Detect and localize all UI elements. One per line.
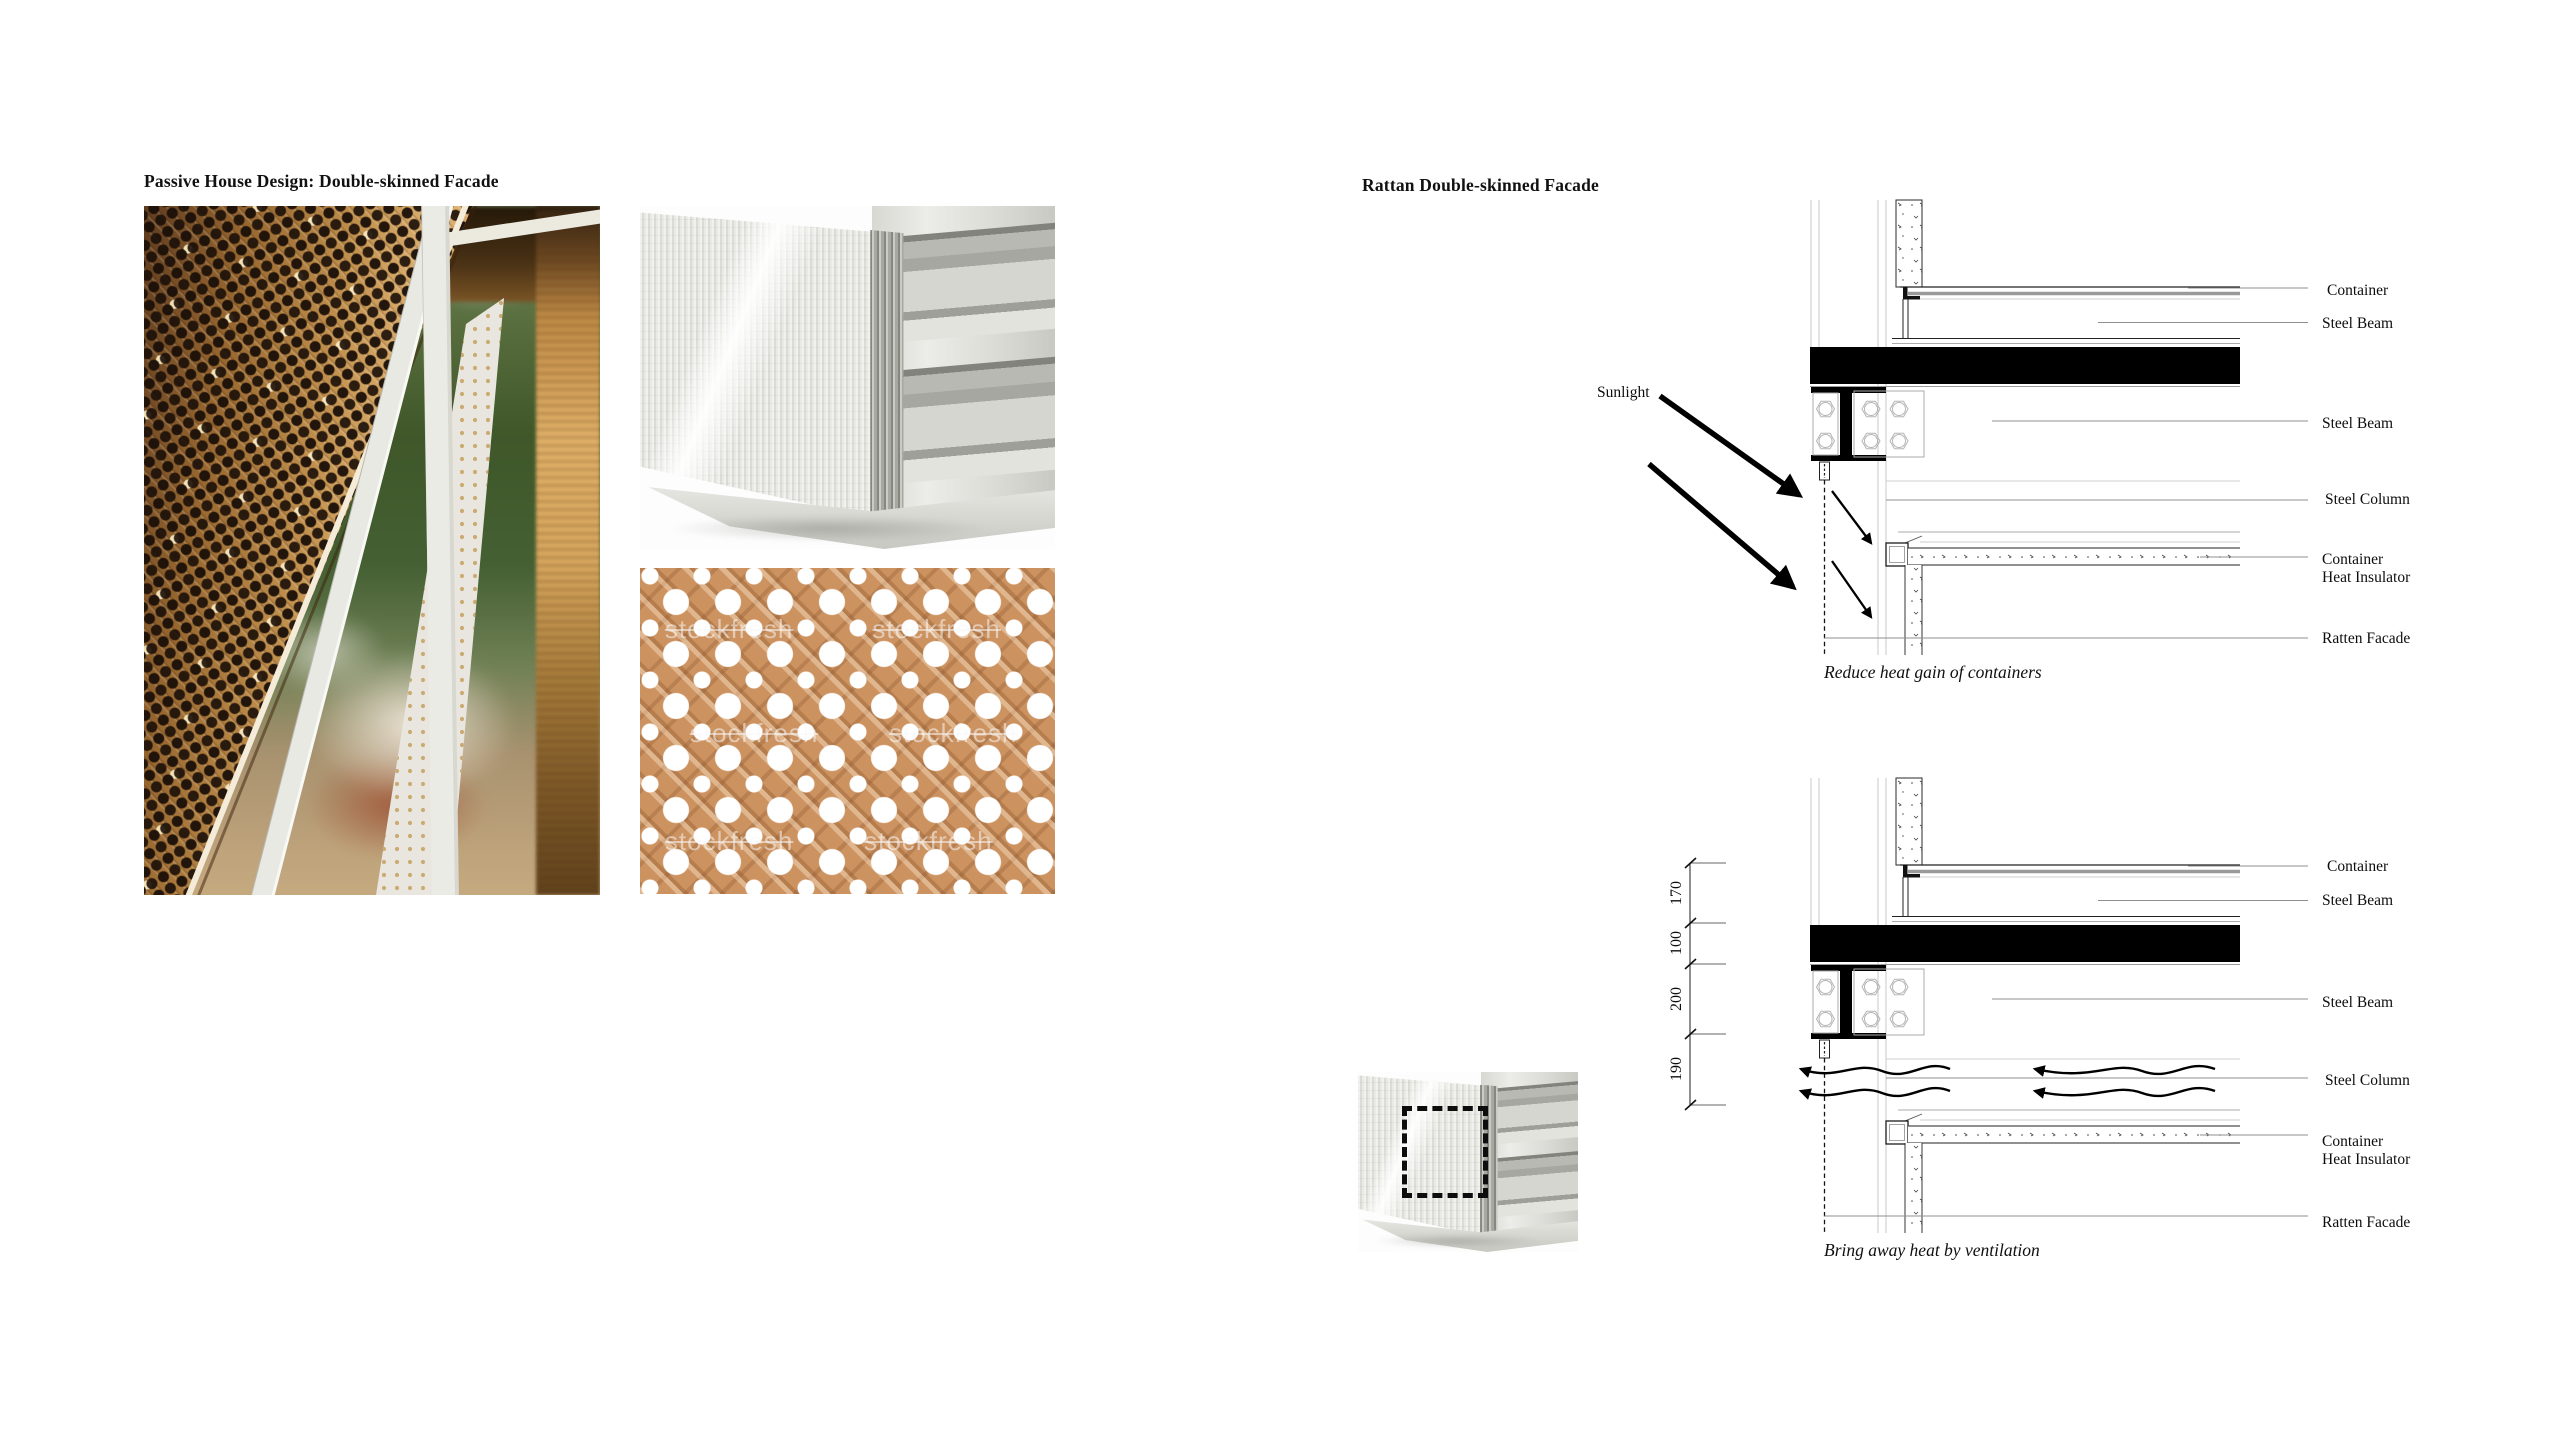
right-section-title: Rattan Double-skinned Facade	[1362, 175, 1599, 196]
label-container: Container	[2322, 282, 2388, 300]
label-steel-column: Steel Column	[2322, 1072, 2410, 1090]
render-balcony-upper	[889, 223, 1055, 344]
watermark-text: stockfresh	[864, 826, 993, 857]
detail-ventilation-linework	[1810, 778, 2308, 1233]
label-steel-beam: Steel Beam	[2322, 415, 2393, 433]
corner-render-image	[640, 206, 1055, 549]
label-container-heat-insulator: Container Heat Insulator	[2322, 1133, 2410, 1168]
dimension-200: 200	[1668, 987, 1686, 1011]
watermark-text: stockfresh	[665, 614, 794, 645]
label-steel-beam: Steel Beam	[2322, 892, 2393, 910]
detail-heat-gain-linework	[1810, 200, 2308, 655]
ventilation-arrows	[1801, 1066, 2215, 1096]
label-steel-column: Steel Column	[2322, 491, 2410, 509]
white-vertical-post	[434, 206, 444, 895]
label-ratten-facade: Ratten Facade	[2322, 1214, 2410, 1232]
render-balcony-lower	[889, 357, 1055, 485]
dimension-chain	[1685, 858, 1726, 1110]
render-ground-shadow	[1371, 1234, 1543, 1248]
photo-frame-overlay	[144, 206, 600, 895]
label-steel-beam: Steel Beam	[2322, 994, 2393, 1012]
caption-ventilation: Bring away heat by ventilation	[1824, 1240, 2040, 1261]
render-corner-louvers	[870, 230, 903, 539]
dimension-190: 190	[1668, 1057, 1686, 1081]
watermark-text: stockfresh	[665, 826, 794, 857]
rattan-facade-photo	[144, 206, 600, 895]
rattan-texture-image: stockfresh stockfresh stockfresh stockfr…	[640, 568, 1055, 894]
render-balcony-lower	[1490, 1151, 1578, 1218]
watermark-text: stockfresh	[889, 718, 1018, 749]
label-container: Container	[2322, 858, 2388, 876]
render-mesh-facade	[640, 206, 877, 532]
left-section-title: Passive House Design: Double-skinned Fac…	[144, 171, 499, 192]
watermark-text: stockfresh	[872, 614, 1001, 645]
label-container-heat-insulator: Container Heat Insulator	[2322, 551, 2410, 586]
render-balcony-upper	[1490, 1081, 1578, 1144]
presentation-page: { "page": {"background": "#ffffff", "acc…	[0, 0, 2560, 1440]
dimension-170: 170	[1668, 881, 1686, 905]
render-ground-shadow	[665, 515, 989, 542]
label-steel-beam: Steel Beam	[2322, 315, 2393, 333]
dimension-100: 100	[1668, 931, 1686, 955]
label-ratten-facade: Ratten Facade	[2322, 630, 2410, 648]
sunlight-arrows	[1649, 396, 1871, 617]
watermark-text: stockfresh	[690, 718, 819, 749]
detail-highlight-box	[1402, 1106, 1488, 1198]
render-building-corner	[640, 206, 1055, 549]
caption-heat-gain: Reduce heat gain of containers	[1824, 662, 2042, 683]
sunlight-label: Sunlight	[1597, 384, 1650, 402]
